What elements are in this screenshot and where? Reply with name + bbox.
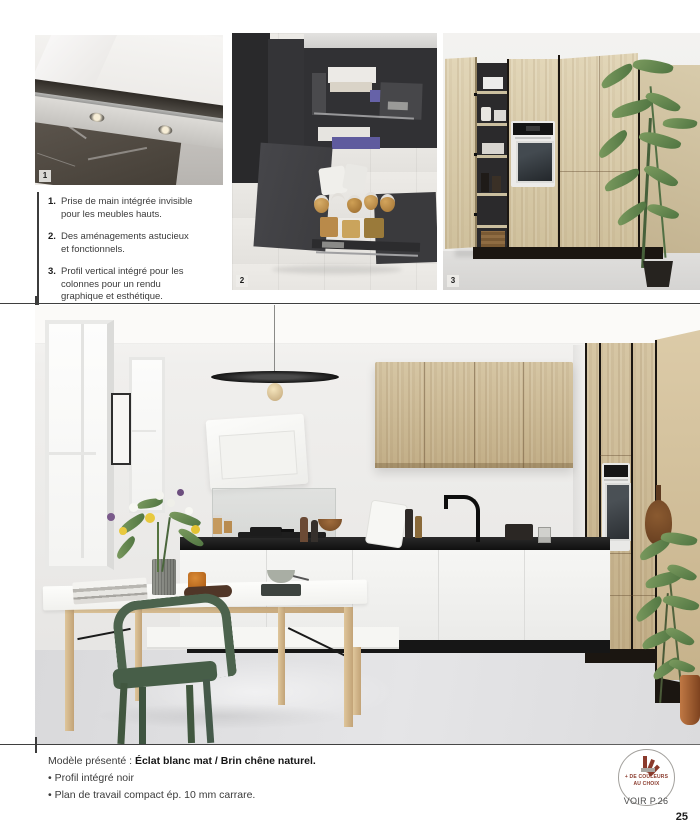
coffee-maker <box>492 176 501 192</box>
top-divider <box>0 303 700 304</box>
table-leg <box>344 607 353 727</box>
faucet-arc <box>444 495 480 542</box>
dishes <box>483 77 503 89</box>
black-profile <box>558 55 560 251</box>
see-page-link[interactable]: VOIR P.26 <box>608 796 684 806</box>
color-swatch-base <box>641 768 655 772</box>
yellow-flower <box>119 527 127 535</box>
window <box>45 320 114 570</box>
flower-bouquet <box>107 487 215 571</box>
plates <box>482 143 504 154</box>
oven-control-panel <box>513 123 553 135</box>
photo2-label: 2 <box>236 275 248 287</box>
plant-stem <box>659 593 669 703</box>
mug <box>481 107 491 121</box>
photo-main-kitchen <box>35 305 700 744</box>
purple-flower <box>107 513 115 521</box>
bottle <box>481 173 489 192</box>
hinge <box>474 93 477 96</box>
drawer-basket <box>312 167 422 247</box>
feature-item: 3. Profil vertical intégré pour les colo… <box>48 266 198 304</box>
white-flower <box>129 503 138 512</box>
storage-jar <box>320 217 338 237</box>
glass-jar <box>538 527 551 543</box>
photo-drawers-detail: 2 <box>232 33 437 290</box>
crop-mark <box>35 737 37 753</box>
chair-leg <box>203 679 214 743</box>
page-number: 25 <box>662 811 688 823</box>
bench-leg <box>353 647 361 715</box>
spot-light <box>158 125 173 136</box>
feature-text: Des aménagements astucieux et fonctionne… <box>61 231 198 256</box>
ceiling <box>35 305 700 344</box>
faucet <box>442 495 478 539</box>
drawer-runner <box>316 251 418 257</box>
door-seam <box>474 362 475 468</box>
hood-panel <box>219 430 298 479</box>
plant-leaf <box>662 591 700 615</box>
window-bar <box>132 430 156 432</box>
storage-jar <box>364 218 384 238</box>
green-chair <box>95 593 240 744</box>
badge-line1: + DE COULEURS <box>619 774 674 781</box>
oven-handle <box>515 137 551 139</box>
plant-leaf <box>668 656 696 676</box>
open-cabinet-door <box>445 57 477 249</box>
plant-leaf <box>632 595 665 623</box>
purple-flower <box>177 489 184 496</box>
badge-line2: AU CHOIX <box>619 781 674 788</box>
caption-prefix: Modèle présenté : <box>48 755 135 767</box>
door-seam <box>424 362 425 468</box>
faucet-spout <box>444 498 448 509</box>
oven-window <box>516 141 554 183</box>
oven-control-panel <box>604 465 628 477</box>
white-flower <box>155 491 164 500</box>
cutting-board <box>365 499 408 548</box>
hinge <box>474 213 477 216</box>
plant-leaf <box>595 129 631 160</box>
basket-front-rail <box>312 239 420 252</box>
countertop-edge <box>304 33 437 49</box>
badge-text: + DE COULEURS AU CHOIX <box>619 774 674 787</box>
flower-stem <box>161 517 171 572</box>
glass-jar <box>364 192 378 210</box>
chair-leg <box>117 683 127 744</box>
feature-list-rule <box>37 192 39 310</box>
door-seam <box>523 362 524 468</box>
shelf <box>477 225 509 228</box>
plant-leaf <box>632 55 674 77</box>
frying-pan <box>250 527 282 536</box>
window-mullion <box>81 324 84 558</box>
model-caption: Modèle présenté : Éclat blanc mat / Brin… <box>48 753 316 804</box>
chair-leg <box>139 687 146 744</box>
glass-jar <box>331 193 345 211</box>
food-bag <box>342 163 368 191</box>
yellow-flower <box>191 525 200 534</box>
caption-model-line: Modèle présenté : Éclat blanc mat / Brin… <box>48 753 316 770</box>
plant <box>593 58 700 288</box>
pan-handle <box>281 529 294 532</box>
shelf <box>477 193 509 196</box>
pepper-mill <box>300 517 308 542</box>
soap-bottle <box>405 509 413 538</box>
lower-drawer <box>257 145 422 263</box>
feature-number: 2. <box>48 231 61 256</box>
photo3-label: 3 <box>447 275 459 287</box>
plant-leaf <box>602 167 642 192</box>
oven-handle <box>604 479 628 481</box>
door-seam <box>600 455 631 456</box>
cabinet-interior <box>477 63 509 249</box>
plant-leaf <box>662 116 697 132</box>
photo1-label: 1 <box>39 170 51 182</box>
plant-leaf <box>610 98 654 119</box>
storage-jar <box>342 220 360 238</box>
framed-picture <box>111 393 131 465</box>
yellow-flower <box>145 513 155 523</box>
caption-bullet: • Profil intégré noir <box>48 770 316 787</box>
white-flower <box>185 507 193 515</box>
door-seam <box>438 550 439 640</box>
flower-stem <box>157 522 159 572</box>
storage-basket <box>481 231 505 247</box>
feature-item: 1. Prise de main intégrée invisible pour… <box>48 196 198 221</box>
oven-window <box>605 483 631 541</box>
plant-leaf <box>598 62 635 89</box>
mug <box>494 110 506 121</box>
pendant-cord <box>274 305 275 373</box>
marble-vein <box>88 147 147 160</box>
marble-vein <box>37 153 75 167</box>
feature-text: Prise de main intégrée invisible pour le… <box>61 196 198 221</box>
feature-item: 2. Des aménagements astucieux et fonctio… <box>48 231 198 256</box>
shelf <box>477 123 509 126</box>
floor-shadow <box>272 265 402 274</box>
photo-handle-detail: 1 <box>35 35 223 185</box>
glass-jar <box>347 195 362 213</box>
counter-box <box>505 524 533 540</box>
copper-pot <box>680 675 700 725</box>
chair-leg <box>186 685 195 743</box>
shelf <box>477 91 509 94</box>
table-leg <box>65 607 74 731</box>
drawer-side <box>312 73 326 115</box>
door-seam <box>524 550 525 640</box>
pendant-lamp-disc <box>211 371 339 383</box>
photo-tall-cabinets: 3 <box>443 33 700 290</box>
plant-leaf <box>638 127 682 154</box>
catalog-page: 1 <box>0 0 700 840</box>
feature-list: 1. Prise de main intégrée invisible pour… <box>48 196 198 314</box>
extractor-hood <box>206 414 309 491</box>
preserve-jar <box>224 519 232 533</box>
caption-model-name: Éclat blanc mat / Brin chêne naturel. <box>135 755 316 767</box>
spot-light <box>89 112 105 123</box>
drawer-label <box>388 102 408 111</box>
glass-jar <box>314 195 329 213</box>
upper-drawer <box>312 63 424 125</box>
feature-text: Profil vertical intégré pour les colonne… <box>61 266 198 304</box>
salt-mill <box>311 520 318 542</box>
black-profile <box>507 59 509 251</box>
window-bar <box>49 452 96 455</box>
hinge <box>474 153 477 156</box>
bottom-divider <box>0 744 700 745</box>
stored-boxes <box>328 67 376 83</box>
shelf <box>477 155 509 158</box>
white-flower <box>167 499 175 507</box>
table-leg <box>278 607 285 705</box>
glass-jar <box>380 194 395 212</box>
cabinet-bottom-edge <box>375 463 573 468</box>
plant-pot <box>641 261 675 287</box>
drawer-label <box>322 241 344 248</box>
soap-bottle <box>415 516 422 538</box>
bouquet-leaf <box>114 535 139 560</box>
feature-number: 1. <box>48 196 61 221</box>
plate-stack <box>261 584 301 596</box>
oven-display <box>526 126 540 131</box>
oak-wall-cabinet <box>375 362 573 468</box>
pendant-bulb <box>267 383 283 401</box>
stored-box <box>330 82 372 92</box>
caption-bullet: • Plan de travail compact ép. 10 mm carr… <box>48 787 316 804</box>
built-in-oven <box>511 121 555 187</box>
feature-number: 3. <box>48 266 61 304</box>
drawer-front <box>379 82 422 119</box>
